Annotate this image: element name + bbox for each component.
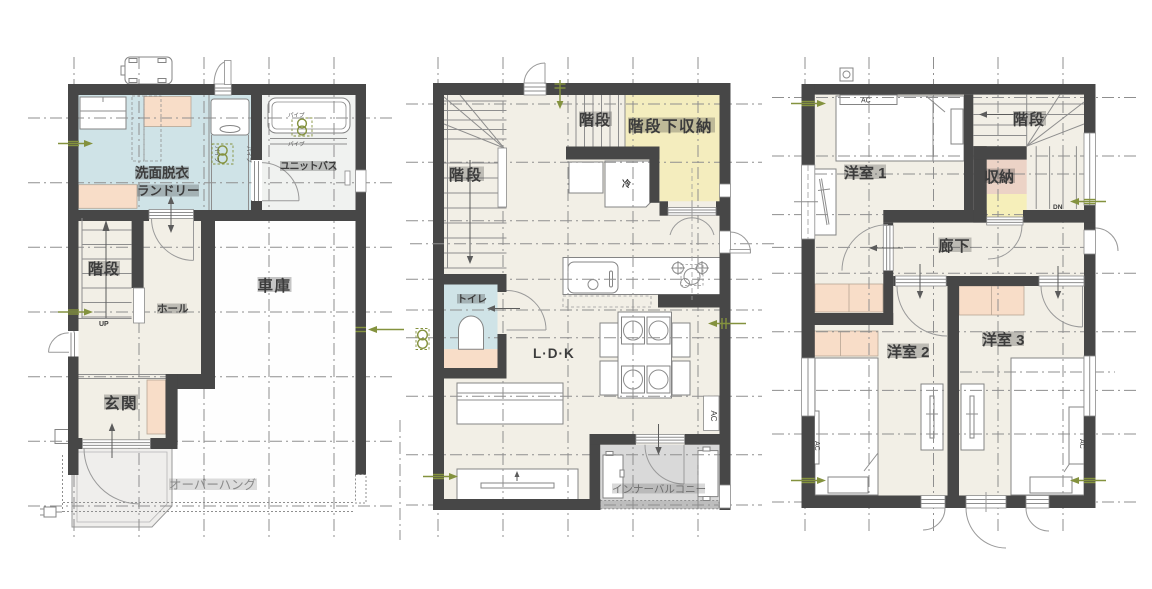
svg-text:ホール: ホール <box>157 303 189 315</box>
svg-text:DN: DN <box>1053 204 1063 211</box>
svg-text:AC: AC <box>813 441 820 451</box>
svg-text:オーバーハング: オーバーハング <box>169 478 256 492</box>
svg-text:洋室 3: 洋室 3 <box>982 331 1025 349</box>
svg-text:ユニットバス: ユニットバス <box>280 161 337 173</box>
svg-text:インナーバルコニー: インナーバルコニー <box>612 484 706 496</box>
svg-text:階段: 階段 <box>579 111 611 129</box>
svg-text:廊下: 廊下 <box>939 237 971 255</box>
svg-text:洗面脱衣: 洗面脱衣 <box>135 165 189 181</box>
svg-text:車庫: 車庫 <box>258 276 292 295</box>
svg-text:階段: 階段 <box>449 166 483 184</box>
svg-text:収納: 収納 <box>984 168 1014 186</box>
svg-text:L·D·K: L·D·K <box>533 346 575 361</box>
svg-text:パイプ: パイプ <box>245 146 252 163</box>
svg-text:UP: UP <box>99 321 109 328</box>
svg-text:階段下収納: 階段下収納 <box>628 117 713 136</box>
svg-text:洋室 2: 洋室 2 <box>887 343 930 361</box>
svg-text:AC: AC <box>709 410 718 421</box>
svg-text:トイレ: トイレ <box>457 294 487 306</box>
svg-text:ランドリー: ランドリー <box>137 184 200 198</box>
svg-text:階段: 階段 <box>1013 111 1045 129</box>
svg-text:パイプ: パイプ <box>288 112 305 119</box>
svg-text:パイプ: パイプ <box>288 141 305 148</box>
svg-text:冷: 冷 <box>622 178 631 189</box>
svg-text:AC: AC <box>1078 439 1085 449</box>
svg-text:AC: AC <box>861 98 871 105</box>
svg-text:パイプ: パイプ <box>213 146 220 163</box>
svg-text:玄関: 玄関 <box>104 394 138 413</box>
svg-text:洋室 1: 洋室 1 <box>844 164 887 182</box>
svg-text:階段: 階段 <box>88 260 120 278</box>
